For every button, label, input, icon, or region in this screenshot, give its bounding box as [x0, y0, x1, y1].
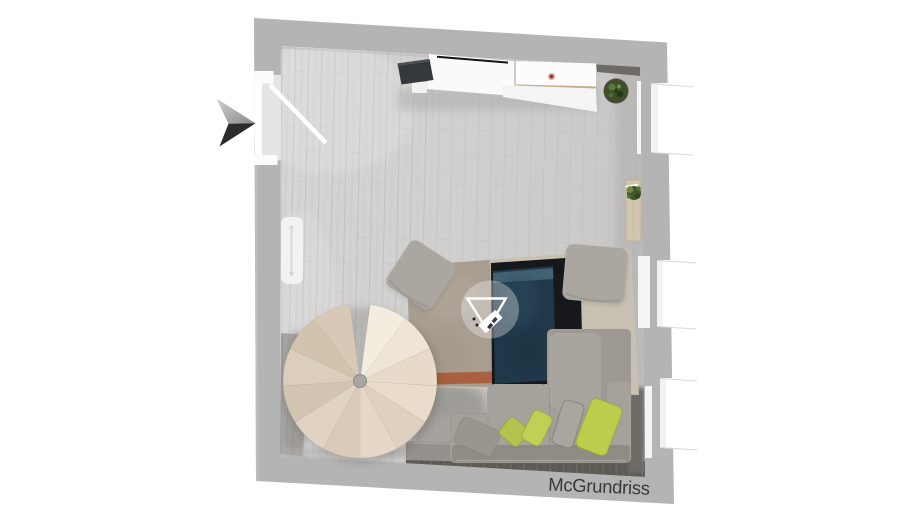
svg-text:McGrundriss: McGrundriss: [548, 474, 650, 499]
